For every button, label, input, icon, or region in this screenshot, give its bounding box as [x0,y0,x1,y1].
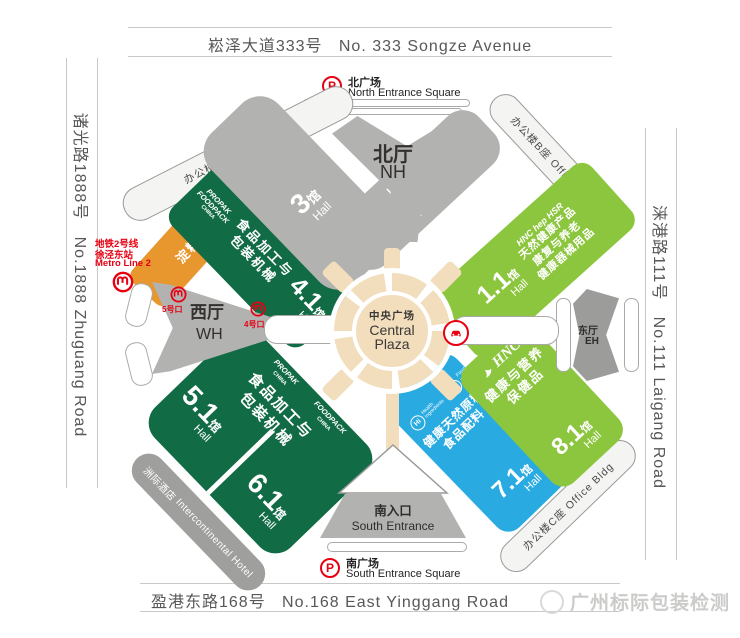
hall-6-1-label: 6.1馆 Hall [234,468,297,532]
north-road-zh: 崧泽大道333号 [208,38,323,55]
hall-5-1-label: 5.1馆 Hall [169,381,232,445]
south-gate-zh: 南入口 [374,500,412,519]
parking-icon-south: P [320,558,340,578]
south-gate: 南入口 South Entrance [320,494,466,538]
east-road-line-right [676,128,677,560]
west-hall-wing-bottom [123,340,155,388]
central-plaza-en1: Central [369,323,414,337]
east-road-zh: 涞港路111号 [650,205,667,300]
east-road-label: 涞港路111号 No.111 Laigang Road [649,131,673,563]
car-dropoff-icon [443,320,469,346]
south-road-line-top [140,583,620,584]
south-road-zh: 盈港东路168号 [151,594,266,611]
metro-logo-icon [112,271,134,293]
hall-8-1-label: 8.1馆 Hall [548,412,604,468]
parking-letter-south: P [326,561,334,575]
east-hall-wing-right [624,298,639,372]
north-road-en: No. 333 Songze Avenue [339,38,532,55]
west-road-zh: 诸光路1888号 [71,113,88,221]
north-hall-en: NH [353,162,433,183]
central-plaza-en2: Plaza [374,337,409,351]
east-road-en: No.111 Laigang Road [650,317,667,489]
venue-map: 崧泽大道333号 No. 333 Songze Avenue 盈港东路168号 … [0,0,740,638]
north-square-en: North Entrance Square [348,87,461,99]
hotel-zh: 洲际酒店 [141,463,181,504]
south-lobby-triangle [333,441,453,497]
south-square-en: South Entrance Square [346,568,460,580]
central-plaza-ring: 中央广场 Central Plaza [334,273,450,389]
east-hall-zh: 东厅 [578,322,598,337]
west-road-en: No.1888 Zhuguang Road [71,237,88,438]
central-plaza-zh: 中央广场 [369,311,415,322]
west-hall-zh: 西厅 [190,298,224,323]
north-road-label: 崧泽大道333号 No. 333 Songze Avenue [140,32,600,56]
east-road-line-left [645,128,646,560]
brand-logo-icon [540,590,564,614]
east-hall-en: EH [585,336,599,347]
hall-3-label: 3馆 Hall [285,179,333,228]
south-road-label: 盈港东路168号 No.168 East Yinggang Road [110,588,550,612]
brand-watermark: 广州标际包装检测 [540,588,730,615]
metro-line-en: Metro Line 2 [95,258,151,269]
metro-exit5-icon [170,286,187,303]
hall-1-1-label: 1.1馆 Hall [473,259,531,316]
west-hall-en: WH [196,326,223,344]
west-road-line-right [97,58,98,488]
metro-exit4-icon [250,301,266,317]
west-road-line-left [66,58,67,488]
south-road-en: No.168 East Yinggang Road [282,594,509,611]
spoke-sw [321,368,355,402]
metro-exit4-label: 4号口 [244,319,264,330]
north-road-line-bottom [128,56,612,57]
west-road-label: 诸光路1888号 No.1888 Zhuguang Road [70,59,94,491]
central-plaza: 中央广场 Central Plaza [352,291,432,371]
hall-1-1-theme: HNC hep HSR 天然健康产品 康复与养老 健康器械用品 [511,198,599,284]
hall-4-1-logos: PROPAK FOODPACK CHINA [191,184,237,230]
south-gate-en: South Entrance [352,519,435,533]
north-road-line-top [128,27,612,28]
south-gate-bar [327,542,467,552]
brand-watermark-text: 广州标际包装检测 [570,588,730,615]
north-walkway [384,248,400,272]
metro-exit5-label: 5号口 [162,304,182,315]
